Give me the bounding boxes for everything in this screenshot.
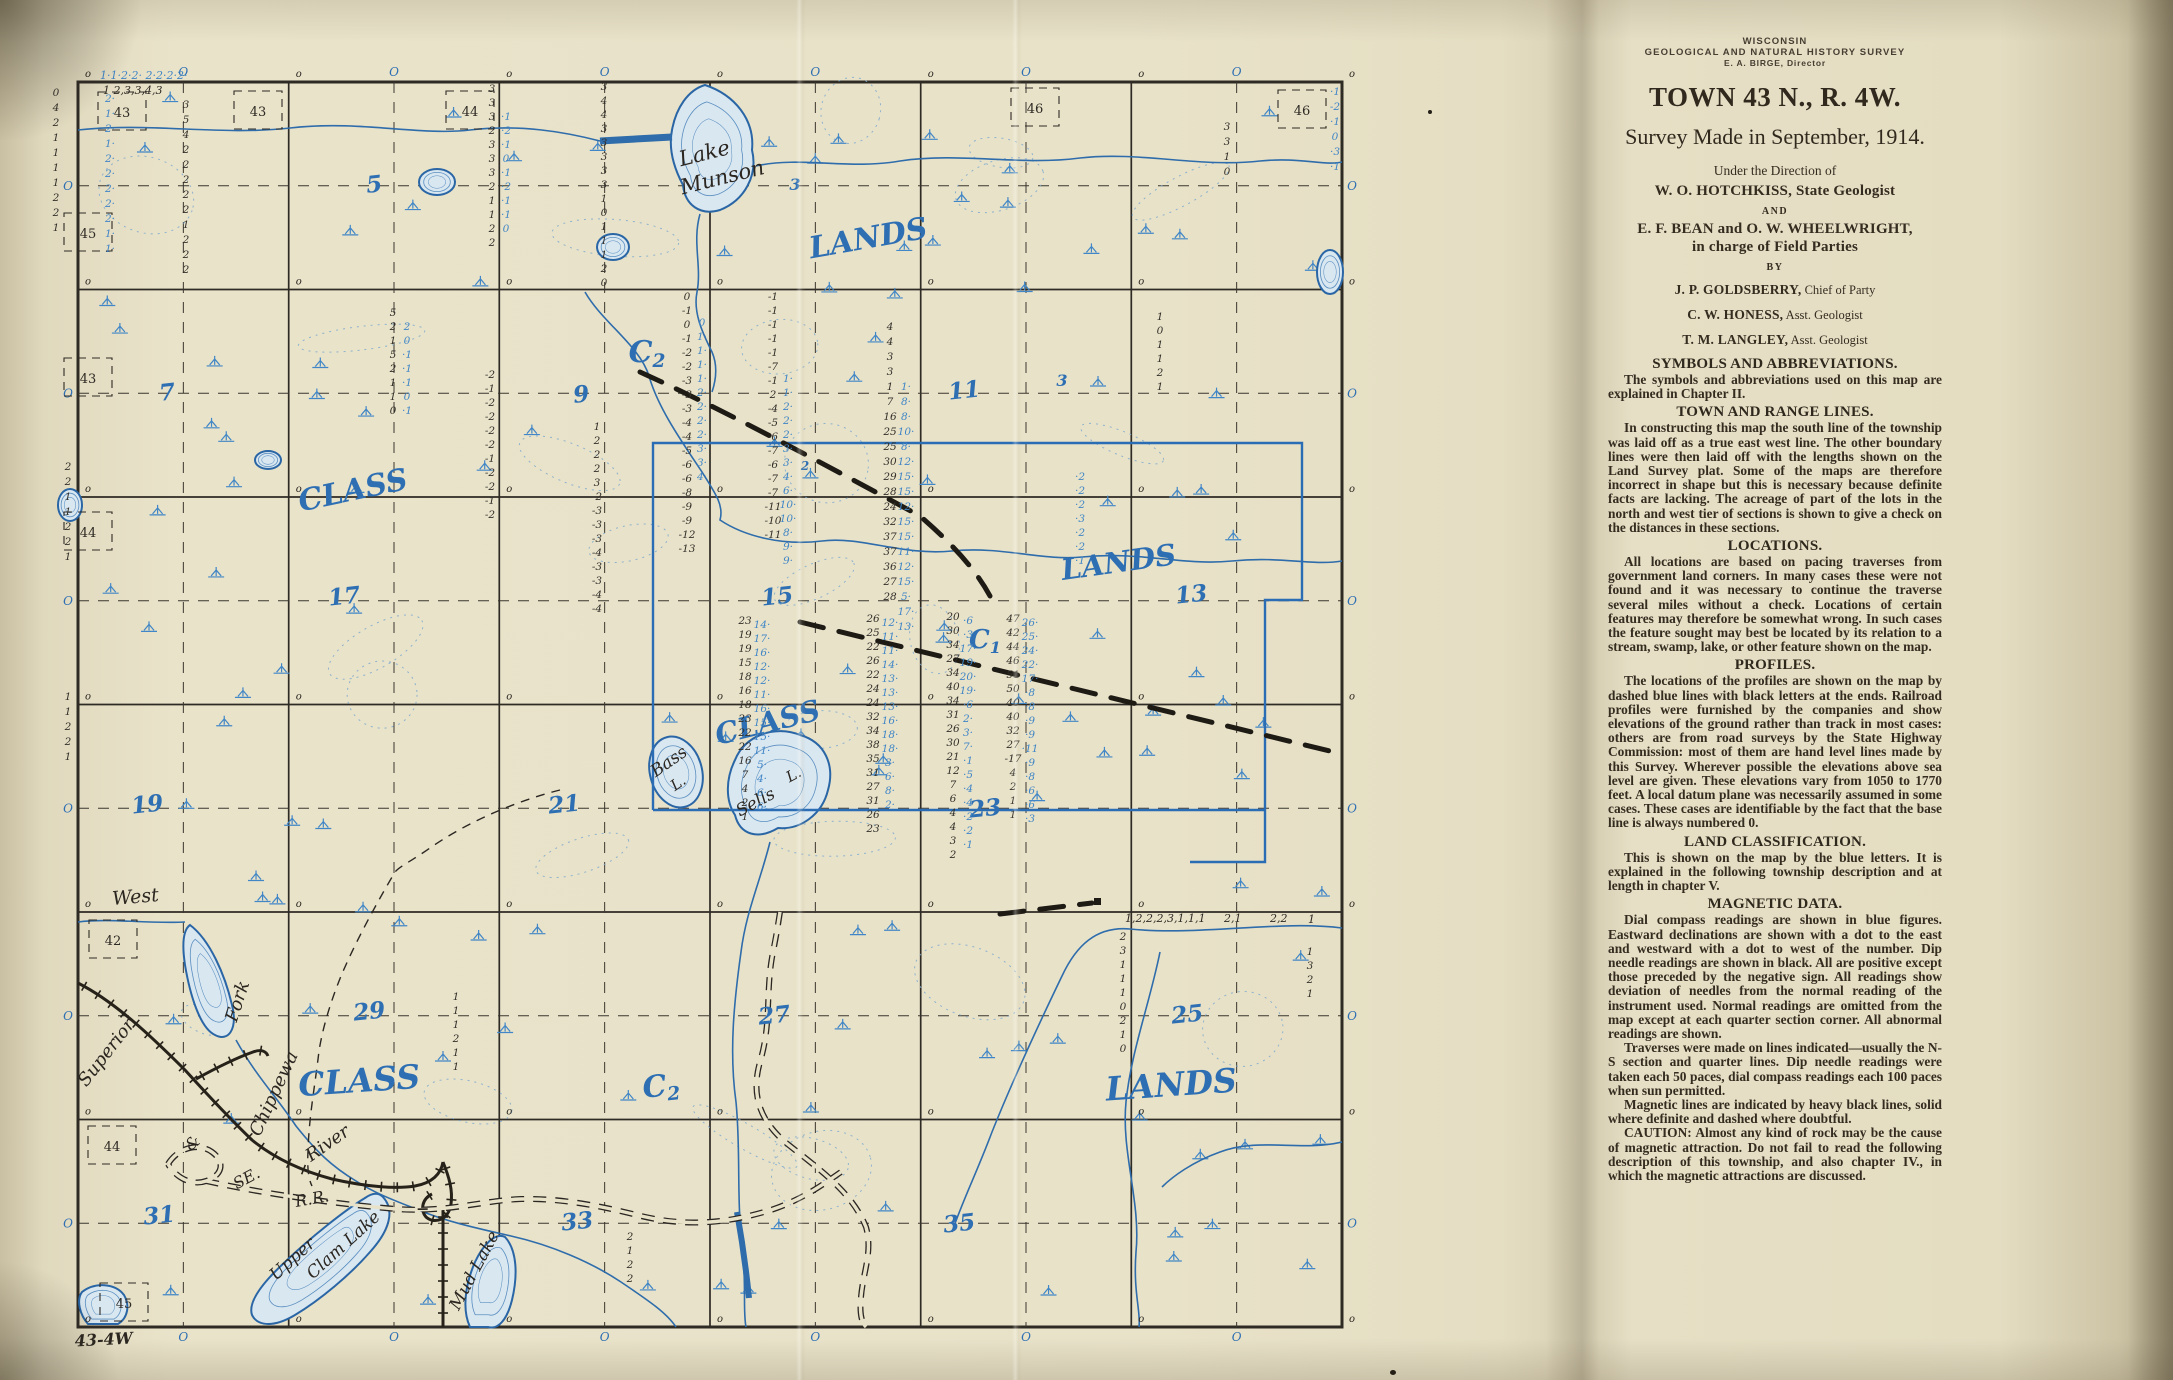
svg-text:-7: -7 — [768, 487, 779, 499]
svg-text:·1: ·1 — [501, 195, 511, 207]
svg-text:1·: 1· — [783, 387, 793, 399]
svg-text:18: 18 — [738, 671, 752, 683]
svg-text:2: 2 — [1306, 974, 1314, 986]
svg-text:13·: 13· — [898, 621, 915, 633]
svg-text:2,1: 2,1 — [1223, 912, 1242, 925]
survey-notes: SYMBOLS AND ABBREVIATIONS.The symbols an… — [1608, 356, 1942, 1183]
svg-text:27: 27 — [756, 1000, 792, 1030]
svg-text:-5: -5 — [682, 445, 693, 457]
svg-text:1·: 1· — [105, 228, 115, 240]
svg-text:3·: 3· — [963, 727, 973, 739]
svg-text:O: O — [63, 1216, 73, 1230]
svg-text:4: 4 — [886, 336, 894, 348]
svg-text:C2: C2 — [629, 335, 666, 372]
svg-text:25: 25 — [865, 627, 880, 639]
svg-text:-2: -2 — [485, 439, 496, 451]
staff-line: C. W. HONESS, Asst. Geologist — [1608, 307, 1942, 323]
svg-text:-13: -13 — [679, 543, 696, 555]
svg-text:1: 1 — [1157, 353, 1164, 365]
svg-text:2·: 2· — [962, 713, 973, 725]
svg-text:2: 2 — [593, 463, 601, 475]
svg-text:o: o — [85, 69, 91, 80]
svg-text:0: 0 — [404, 335, 411, 347]
svg-text:1: 1 — [1120, 959, 1127, 971]
svg-text:-9: -9 — [682, 501, 693, 513]
svg-text:14·: 14· — [754, 619, 771, 631]
svg-text:22: 22 — [737, 727, 752, 739]
svg-text:·8: ·8 — [1025, 771, 1035, 783]
svg-text:44: 44 — [104, 1140, 121, 1155]
svg-text:3: 3 — [489, 167, 496, 179]
svg-text:16: 16 — [738, 685, 752, 697]
svg-text:3·: 3· — [783, 443, 793, 455]
svg-text:·2: ·2 — [963, 825, 973, 837]
svg-text:5: 5 — [365, 170, 384, 199]
svg-text:-6: -6 — [682, 459, 693, 471]
svg-text:3: 3 — [183, 99, 190, 111]
svg-text:o: o — [506, 899, 512, 910]
svg-text:6·: 6· — [757, 787, 767, 799]
svg-text:2: 2 — [600, 263, 608, 275]
svg-text:16: 16 — [883, 411, 897, 423]
svg-text:1: 1 — [489, 209, 496, 221]
svg-text:26: 26 — [945, 723, 960, 735]
svg-text:29: 29 — [882, 471, 897, 483]
svg-text:2: 2 — [64, 521, 72, 533]
svg-text:37: 37 — [883, 546, 897, 558]
svg-text:4: 4 — [741, 783, 749, 795]
svg-text:4: 4 — [182, 129, 190, 141]
scanned-survey-plate: { "page": { "header_line1": "WISCONSIN",… — [0, 0, 2173, 1380]
svg-text:3: 3 — [489, 111, 496, 123]
svg-text:13·: 13· — [882, 687, 899, 699]
svg-text:42: 42 — [105, 934, 122, 949]
svg-text:14·: 14· — [882, 659, 899, 671]
svg-text:1: 1 — [1157, 381, 1164, 393]
svg-text:1·: 1· — [697, 345, 707, 357]
svg-text:O: O — [1232, 1330, 1242, 1344]
svg-text:-1: -1 — [682, 333, 692, 345]
svg-text:·2: ·2 — [1075, 499, 1085, 511]
svg-text:O: O — [1347, 1009, 1357, 1023]
svg-text:31: 31 — [866, 795, 879, 807]
section-heading: LOCATIONS. — [1608, 538, 1942, 555]
svg-text:·8: ·8 — [1025, 701, 1035, 713]
svg-text:3: 3 — [601, 151, 608, 163]
svg-text:-1: -1 — [485, 495, 495, 507]
svg-text:1,2,2,2,3,1,1,1: 1,2,2,2,3,1,1,1 — [1125, 912, 1205, 925]
staff-list: J. P. GOLDSBERRY, Chief of PartyC. W. HO… — [1608, 282, 1942, 348]
svg-text:8·: 8· — [901, 411, 911, 423]
section-heading: TOWN AND RANGE LINES. — [1608, 404, 1942, 421]
svg-text:Superior: Superior — [74, 1014, 141, 1091]
svg-text:·2: ·2 — [1075, 485, 1085, 497]
svg-text:o: o — [1138, 69, 1144, 80]
svg-text:1: 1 — [53, 222, 60, 234]
svg-text:2: 2 — [626, 1231, 634, 1243]
svg-text:1: 1 — [1010, 809, 1017, 821]
svg-text:29: 29 — [351, 996, 387, 1026]
svg-text:2·: 2· — [104, 93, 115, 105]
svg-text:42: 42 — [1005, 627, 1020, 639]
svg-text:11·: 11· — [882, 631, 899, 643]
svg-text:19: 19 — [738, 643, 752, 655]
svg-text:24: 24 — [882, 501, 896, 513]
svg-text:·1: ·1 — [402, 363, 412, 375]
svg-text:o: o — [1138, 1314, 1144, 1325]
state-geologist: W. O. HOTCHKISS, State Geologist — [1608, 183, 1942, 200]
svg-text:16·: 16· — [754, 647, 771, 659]
svg-text:28: 28 — [882, 486, 897, 498]
svg-text:2: 2 — [488, 181, 496, 193]
svg-text:2: 2 — [389, 321, 397, 333]
svg-text:30: 30 — [946, 737, 960, 749]
svg-text:CLASS: CLASS — [297, 1057, 421, 1104]
svg-text:o: o — [506, 484, 512, 495]
svg-text:-3: -3 — [682, 375, 693, 387]
svg-text:23: 23 — [737, 713, 752, 725]
svg-text:2: 2 — [182, 204, 190, 216]
svg-text:3: 3 — [1120, 945, 1127, 957]
section-paragraph: Magnetic lines are indicated by heavy bl… — [1608, 1098, 1942, 1126]
svg-text:LANDS: LANDS — [1103, 1060, 1238, 1108]
svg-text:3·: 3· — [885, 757, 895, 769]
svg-text:10·: 10· — [780, 513, 797, 525]
field-party-directors: E. F. BEAN and O. W. WHEELWRIGHT, — [1608, 221, 1942, 238]
svg-text:31: 31 — [866, 767, 879, 779]
svg-text:13·: 13· — [882, 701, 899, 713]
svg-text:1: 1 — [601, 193, 608, 205]
svg-text:47: 47 — [1005, 613, 1020, 625]
svg-text:O: O — [63, 386, 73, 400]
svg-text:-6: -6 — [768, 459, 779, 471]
svg-text:·2: ·2 — [963, 811, 973, 823]
svg-text:1: 1 — [489, 195, 496, 207]
svg-text:-6: -6 — [768, 431, 779, 443]
svg-text:2: 2 — [593, 449, 601, 461]
svg-text:1: 1 — [1120, 973, 1127, 985]
svg-text:-5: -5 — [768, 417, 779, 429]
svg-text:1: 1 — [390, 377, 397, 389]
svg-text:11·: 11· — [882, 645, 899, 657]
svg-text:2: 2 — [52, 117, 60, 129]
svg-text:0: 0 — [503, 223, 510, 235]
svg-text:15·: 15· — [898, 576, 915, 588]
svg-text:·1: ·1 — [501, 209, 511, 221]
svg-text:1: 1 — [1010, 795, 1017, 807]
svg-text:·1: ·1 — [1330, 116, 1340, 128]
svg-text:43: 43 — [114, 106, 131, 121]
svg-text:o: o — [928, 277, 934, 288]
svg-text:o: o — [1349, 899, 1355, 910]
svg-text:2·: 2· — [696, 387, 707, 399]
svg-text:1: 1 — [1120, 987, 1127, 999]
svg-text:2: 2 — [182, 189, 190, 201]
svg-text:-1: -1 — [768, 319, 778, 331]
svg-text:15·: 15· — [754, 731, 771, 743]
svg-text:1: 1 — [453, 1005, 460, 1017]
svg-text:0: 0 — [1120, 1043, 1127, 1055]
svg-text:1: 1 — [601, 221, 608, 233]
staff-line: T. M. LANGLEY, Asst. Geologist — [1608, 332, 1942, 348]
svg-text:o: o — [928, 692, 934, 703]
svg-text:5: 5 — [183, 114, 190, 126]
svg-text:7: 7 — [887, 396, 894, 408]
svg-text:·1: ·1 — [501, 111, 511, 123]
svg-text:2·: 2· — [104, 123, 115, 135]
svg-text:15: 15 — [760, 581, 795, 611]
svg-text:o: o — [1349, 277, 1355, 288]
svg-text:1: 1 — [1307, 988, 1314, 1000]
svg-text:o: o — [1138, 899, 1144, 910]
svg-text:17: 17 — [327, 581, 362, 611]
svg-text:1: 1 — [65, 491, 72, 503]
svg-text:8·: 8· — [901, 441, 911, 453]
svg-text:35: 35 — [866, 753, 880, 765]
svg-text:19·: 19· — [960, 685, 977, 697]
svg-text:15·: 15· — [898, 531, 915, 543]
svg-text:30: 30 — [946, 625, 960, 637]
svg-text:24: 24 — [865, 683, 879, 695]
svg-text:o: o — [506, 69, 512, 80]
svg-text:17·: 17· — [754, 633, 771, 645]
svg-text:1: 1 — [65, 706, 72, 718]
pond — [1317, 250, 1343, 294]
svg-text:34: 34 — [946, 667, 959, 679]
svg-text:o: o — [717, 277, 723, 288]
svg-text:·8: ·8 — [1025, 687, 1035, 699]
svg-text:0: 0 — [601, 207, 608, 219]
svg-text:-2: -2 — [682, 347, 693, 359]
svg-text:R.R.: R.R. — [293, 1186, 331, 1211]
svg-text:River: River — [301, 1120, 355, 1167]
svg-text:·6: ·6 — [1025, 799, 1035, 811]
svg-text:43: 43 — [80, 372, 97, 387]
svg-text:2: 2 — [488, 237, 496, 249]
svg-text:34: 34 — [946, 695, 959, 707]
svg-text:11·: 11· — [754, 689, 771, 701]
svg-text:1·: 1· — [697, 331, 707, 343]
svg-text:-1: -1 — [768, 347, 778, 359]
pond — [419, 169, 455, 195]
svg-text:-2: -2 — [682, 361, 693, 373]
section-paragraph: Traverses were made on lines indicated—u… — [1608, 1041, 1942, 1098]
svg-text:6·: 6· — [757, 801, 767, 813]
svg-text:27: 27 — [865, 781, 880, 793]
svg-text:O: O — [63, 801, 73, 815]
svg-text:45: 45 — [80, 227, 97, 242]
svg-text:2·: 2· — [104, 183, 115, 195]
section-heading: LAND CLASSIFICATION. — [1608, 834, 1942, 851]
page-title: TOWN 43 N., R. 4W. — [1608, 82, 1942, 113]
svg-text:·3: ·3 — [963, 629, 973, 641]
svg-text:·1: ·1 — [402, 377, 412, 389]
svg-text:-11: -11 — [765, 529, 782, 541]
svg-text:23: 23 — [865, 823, 880, 835]
svg-text:O: O — [389, 1330, 399, 1344]
svg-text:-3: -3 — [592, 519, 603, 531]
svg-text:1·1·2·2· 2·2·2·2·: 1·1·2·2· 2·2·2·2· — [100, 69, 187, 82]
svg-text:1·: 1· — [783, 373, 793, 385]
svg-text:26: 26 — [865, 655, 880, 667]
svg-text:4: 4 — [52, 102, 60, 114]
svg-text:22: 22 — [865, 669, 880, 681]
section-paragraph: In constructing this map the south line … — [1608, 421, 1942, 535]
svg-text:9: 9 — [572, 380, 591, 409]
svg-text:8·: 8· — [783, 527, 793, 539]
svg-text:0: 0 — [1224, 166, 1231, 178]
svg-text:-3: -3 — [592, 575, 603, 587]
svg-text:44: 44 — [80, 526, 97, 541]
svg-text:27: 27 — [882, 576, 897, 588]
svg-text:30: 30 — [883, 456, 897, 468]
svg-text:o: o — [85, 899, 91, 910]
svg-text:0: 0 — [699, 317, 706, 329]
svg-text:1: 1 — [1307, 946, 1314, 958]
svg-text:·9: ·9 — [1025, 757, 1035, 769]
svg-text:0: 0 — [1120, 1001, 1127, 1013]
svg-text:O: O — [810, 1330, 820, 1344]
svg-text:4: 4 — [886, 321, 894, 333]
svg-text:5: 5 — [390, 349, 397, 361]
svg-text:-6: -6 — [682, 473, 693, 485]
svg-text:-1: -1 — [768, 291, 778, 303]
svg-text:28: 28 — [882, 591, 897, 603]
svg-text:2: 2 — [1119, 931, 1127, 943]
svg-text:3: 3 — [950, 835, 957, 847]
svg-text:o: o — [296, 69, 302, 80]
svg-text:2: 2 — [64, 461, 72, 473]
svg-text:40: 40 — [1005, 711, 1020, 723]
svg-text:5·: 5· — [901, 591, 911, 603]
svg-text:16·: 16· — [882, 715, 899, 727]
svg-text:13: 13 — [1174, 579, 1209, 609]
svg-text:o: o — [506, 1107, 512, 1118]
svg-text:O: O — [1021, 65, 1031, 79]
agency-line: E. A. BIRGE, Director — [1608, 58, 1942, 69]
svg-text:36: 36 — [883, 561, 897, 573]
svg-text:2: 2 — [626, 1259, 634, 1271]
svg-text:·2: ·2 — [1075, 527, 1085, 539]
svg-text:O: O — [63, 594, 73, 608]
svg-text:0: 0 — [684, 319, 691, 331]
svg-text:o: o — [296, 277, 302, 288]
svg-text:o: o — [1138, 692, 1144, 703]
svg-text:2·: 2· — [104, 153, 115, 165]
svg-text:·4: ·4 — [963, 797, 973, 809]
svg-text:13·: 13· — [882, 673, 899, 685]
svg-text:O: O — [810, 65, 820, 79]
svg-text:o: o — [928, 1107, 934, 1118]
svg-text:-2: -2 — [485, 397, 496, 409]
by-label: BY — [1608, 262, 1942, 273]
svg-text:12·: 12· — [898, 456, 915, 468]
svg-text:3: 3 — [601, 123, 608, 135]
agency-header: WISCONSIN GEOLOGICAL AND NATURAL HISTORY… — [1608, 36, 1942, 69]
svg-text:o: o — [1138, 484, 1144, 495]
svg-text:27: 27 — [945, 653, 960, 665]
svg-text:8·: 8· — [901, 396, 911, 408]
svg-text:o: o — [717, 899, 723, 910]
svg-text:20·: 20· — [959, 671, 977, 683]
svg-text:Chippewa: Chippewa — [245, 1048, 302, 1139]
svg-text:19: 19 — [738, 629, 752, 641]
svg-text:21: 21 — [945, 751, 959, 763]
svg-text:·3: ·3 — [1330, 146, 1340, 158]
svg-text:15·: 15· — [898, 516, 915, 528]
svg-text:45: 45 — [116, 1297, 133, 1312]
staff-line: J. P. GOLDSBERRY, Chief of Party — [1608, 282, 1942, 298]
svg-text:31: 31 — [142, 1200, 177, 1230]
svg-text:2: 2 — [389, 363, 397, 375]
svg-text:27: 27 — [1005, 739, 1020, 751]
svg-text:4: 4 — [600, 109, 608, 121]
svg-text:51: 51 — [1006, 669, 1019, 681]
svg-text:11: 11 — [947, 375, 982, 405]
svg-text:0: 0 — [601, 277, 608, 289]
svg-text:o: o — [296, 899, 302, 910]
svg-text:12·: 12· — [898, 501, 915, 513]
svg-text:o: o — [717, 1314, 723, 1325]
svg-text:-2: -2 — [592, 491, 603, 503]
svg-text:10·: 10· — [898, 426, 915, 438]
page-subtitle: Survey Made in September, 1914. — [1608, 124, 1942, 150]
svg-text:3: 3 — [489, 153, 496, 165]
svg-text:·1: ·1 — [402, 405, 412, 417]
svg-text:0: 0 — [1332, 131, 1339, 143]
svg-text:6·: 6· — [783, 485, 793, 497]
svg-text:38: 38 — [866, 739, 880, 751]
svg-text:-1: -1 — [768, 333, 778, 345]
svg-text:3: 3 — [601, 165, 608, 177]
svg-text:1: 1 — [887, 381, 894, 393]
svg-text:-1: -1 — [768, 375, 778, 387]
svg-text:12·: 12· — [898, 561, 915, 573]
svg-text:1·: 1· — [105, 243, 115, 255]
svg-text:O: O — [389, 65, 399, 79]
svg-text:O: O — [600, 65, 610, 79]
svg-text:37: 37 — [883, 531, 897, 543]
svg-text:-2: -2 — [485, 369, 496, 381]
svg-text:2: 2 — [488, 223, 496, 235]
svg-text:9·: 9· — [783, 555, 793, 567]
agency-line: GEOLOGICAL AND NATURAL HISTORY SURVEY — [1608, 47, 1942, 58]
svg-text:12·: 12· — [754, 675, 771, 687]
section-paragraph: All locations are based on pacing traver… — [1608, 555, 1942, 654]
svg-text:O: O — [600, 1330, 610, 1344]
svg-text:·2: ·2 — [501, 125, 511, 137]
svg-text:3: 3 — [489, 83, 496, 95]
svg-text:-2: -2 — [485, 509, 496, 521]
svg-text:4: 4 — [1009, 767, 1017, 779]
svg-text:2: 2 — [593, 435, 601, 447]
svg-text:·9: ·9 — [1025, 715, 1035, 727]
svg-text:15·: 15· — [898, 486, 915, 498]
svg-text:3: 3 — [1224, 136, 1231, 148]
svg-text:1: 1 — [1308, 913, 1315, 926]
svg-text:o: o — [717, 692, 723, 703]
svg-text:15·: 15· — [898, 471, 915, 483]
svg-text:O: O — [1347, 1216, 1357, 1230]
svg-text:o: o — [1349, 484, 1355, 495]
svg-text:-1: -1 — [768, 305, 778, 317]
svg-text:o: o — [85, 692, 91, 703]
svg-text:2·: 2· — [782, 401, 793, 413]
svg-text:O: O — [63, 1009, 73, 1023]
svg-text:o: o — [1349, 692, 1355, 703]
paper-speck — [1428, 110, 1432, 114]
svg-text:43: 43 — [250, 105, 267, 120]
